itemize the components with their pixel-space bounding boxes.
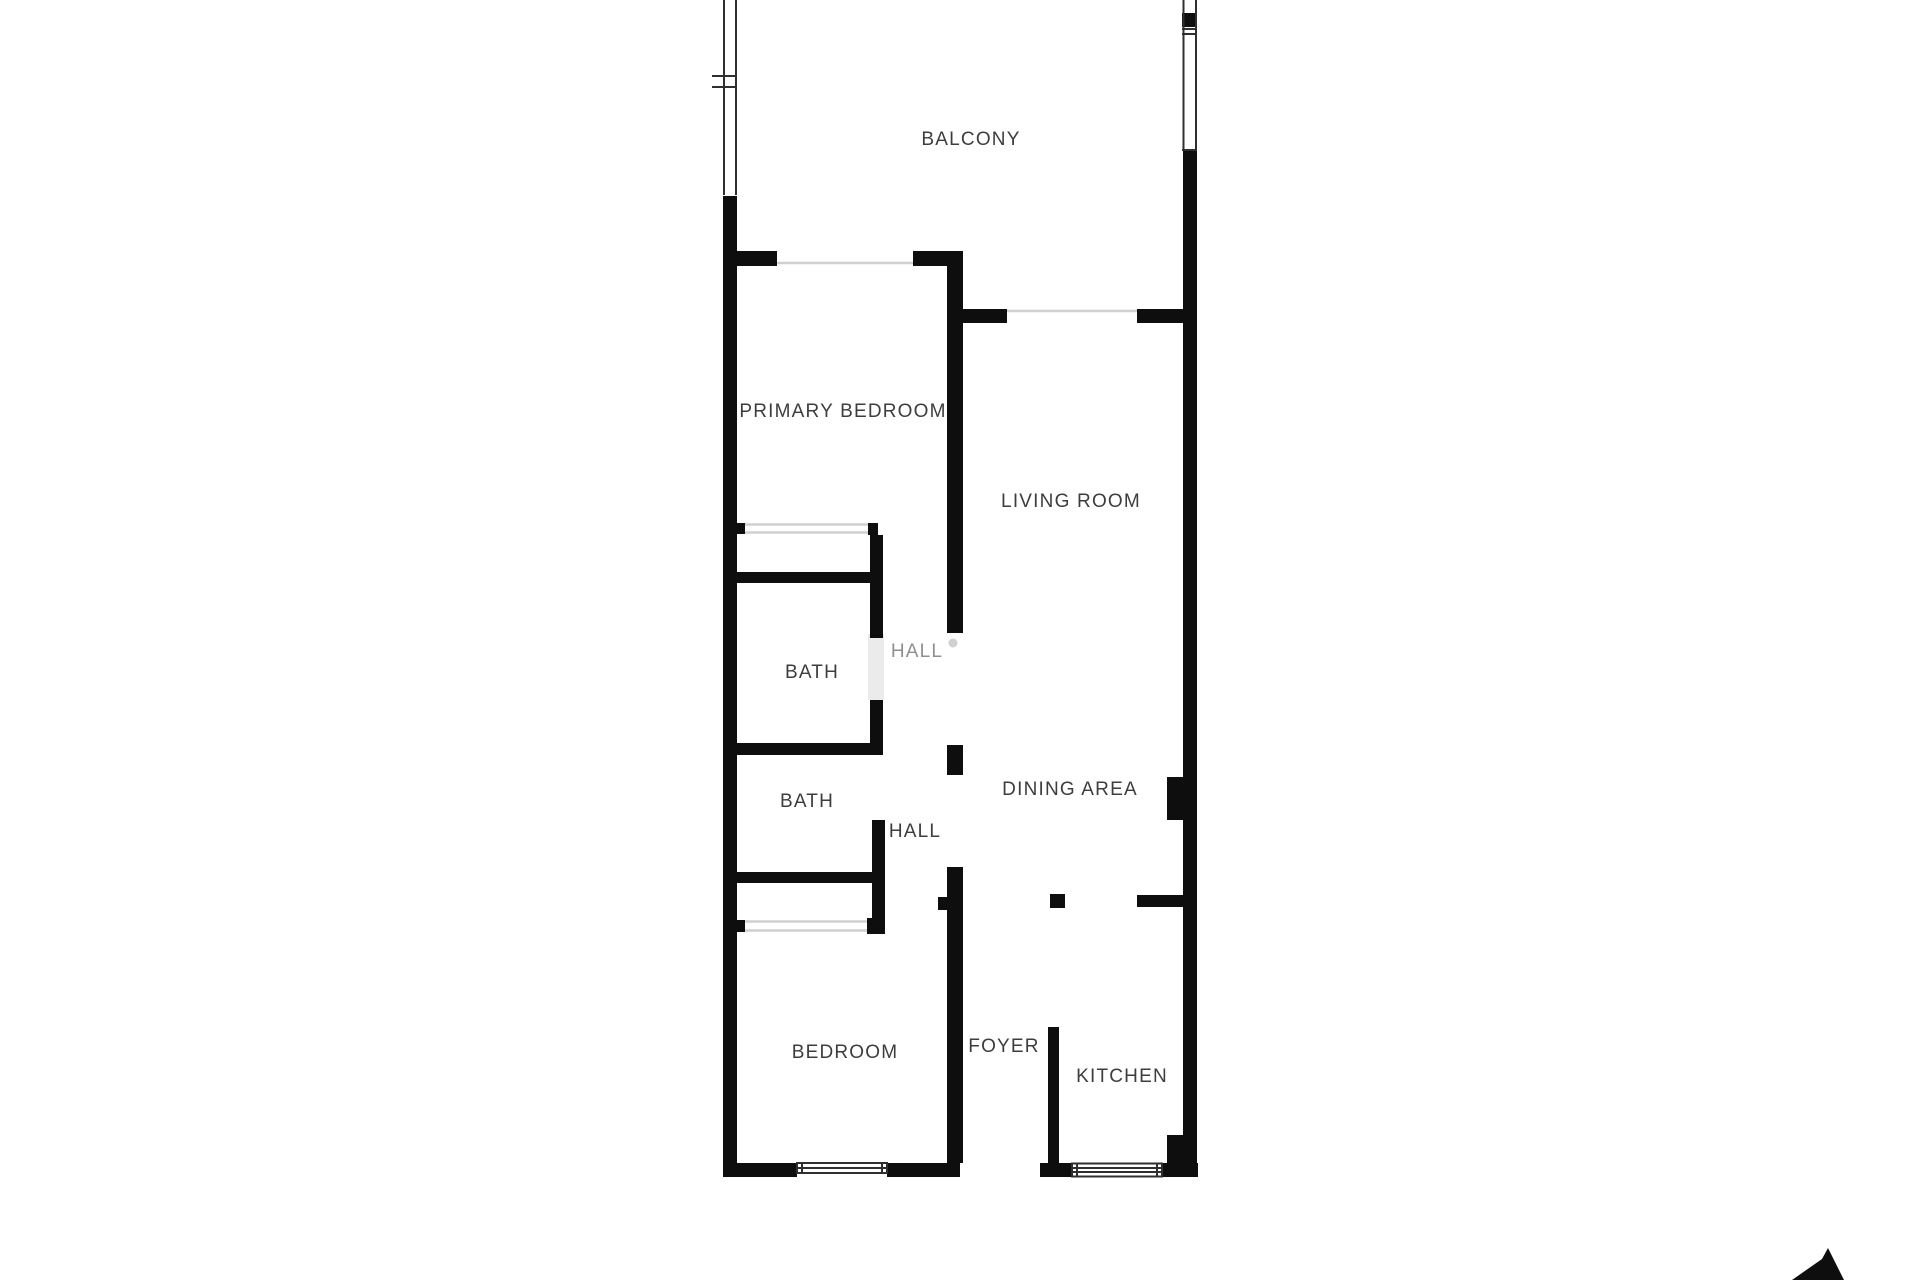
wall-dining-stub-left bbox=[938, 897, 947, 910]
label-bath-1: BATH bbox=[785, 662, 839, 684]
wall-interior-mid bbox=[947, 745, 963, 775]
wall-right-exterior bbox=[1183, 150, 1197, 1177]
wall-interior-lower bbox=[947, 867, 963, 1163]
wall-closet-cap-right bbox=[868, 523, 878, 535]
label-primary-bedroom: PRIMARY BEDROOM bbox=[739, 401, 946, 423]
label-bedroom: BEDROOM bbox=[792, 1042, 899, 1064]
wall-bath1-bottom bbox=[723, 743, 883, 755]
wall-foyer-kitchen bbox=[1048, 1027, 1059, 1163]
label-bath-2: BATH bbox=[780, 791, 834, 813]
wall-living-room-top-right bbox=[1137, 309, 1183, 323]
label-living-room: LIVING ROOM bbox=[1001, 491, 1141, 513]
wall-interior-upper bbox=[947, 266, 963, 633]
wall-dining-pilaster bbox=[1167, 777, 1183, 820]
label-balcony: BALCONY bbox=[921, 129, 1020, 151]
wall-bedroom-closet-stub-left bbox=[723, 920, 745, 932]
wall-dining-kitchen-partial bbox=[1137, 895, 1183, 907]
wall-bedroom-closet-cap-right bbox=[867, 918, 885, 934]
wall-left-exterior bbox=[723, 196, 737, 1177]
wall-primary-bedroom-top-right bbox=[913, 251, 963, 266]
floor-plan-page: BALCONY PRIMARY BEDROOM LIVING ROOM BATH… bbox=[0, 0, 1920, 1280]
wall-bath2-bottom bbox=[723, 872, 885, 883]
label-hall-1: HALL bbox=[891, 641, 943, 663]
wall-primary-bedroom-top-left bbox=[723, 251, 777, 266]
label-hall-2: HALL bbox=[889, 821, 941, 843]
floor-plan-drawing bbox=[0, 0, 1920, 1280]
wall-bottom-mid bbox=[887, 1163, 960, 1177]
watermark-box bbox=[868, 634, 884, 700]
wall-closet-back bbox=[723, 572, 883, 583]
wall-living-room-top-left bbox=[963, 309, 1007, 323]
wall-kitchen-corner-chunk bbox=[1167, 1135, 1183, 1163]
walls bbox=[723, 13, 1198, 1177]
kitchen-window-frame bbox=[1072, 1164, 1162, 1177]
north-arrow-icon bbox=[1792, 1248, 1844, 1280]
label-foyer: FOYER bbox=[968, 1036, 1039, 1058]
wall-bottom-right-corner bbox=[1162, 1163, 1198, 1177]
wall-foyer-kitchen-foot bbox=[1040, 1163, 1072, 1177]
wall-bath1-hall-upper bbox=[870, 535, 883, 638]
wall-dining-kitchen-square bbox=[1050, 894, 1065, 908]
wall-closet-stub-left bbox=[737, 523, 745, 534]
label-kitchen: KITCHEN bbox=[1076, 1066, 1168, 1088]
watermark-ring-hole bbox=[949, 639, 958, 648]
label-dining-area: DINING AREA bbox=[1002, 779, 1138, 801]
wall-bottom-left bbox=[723, 1163, 797, 1177]
